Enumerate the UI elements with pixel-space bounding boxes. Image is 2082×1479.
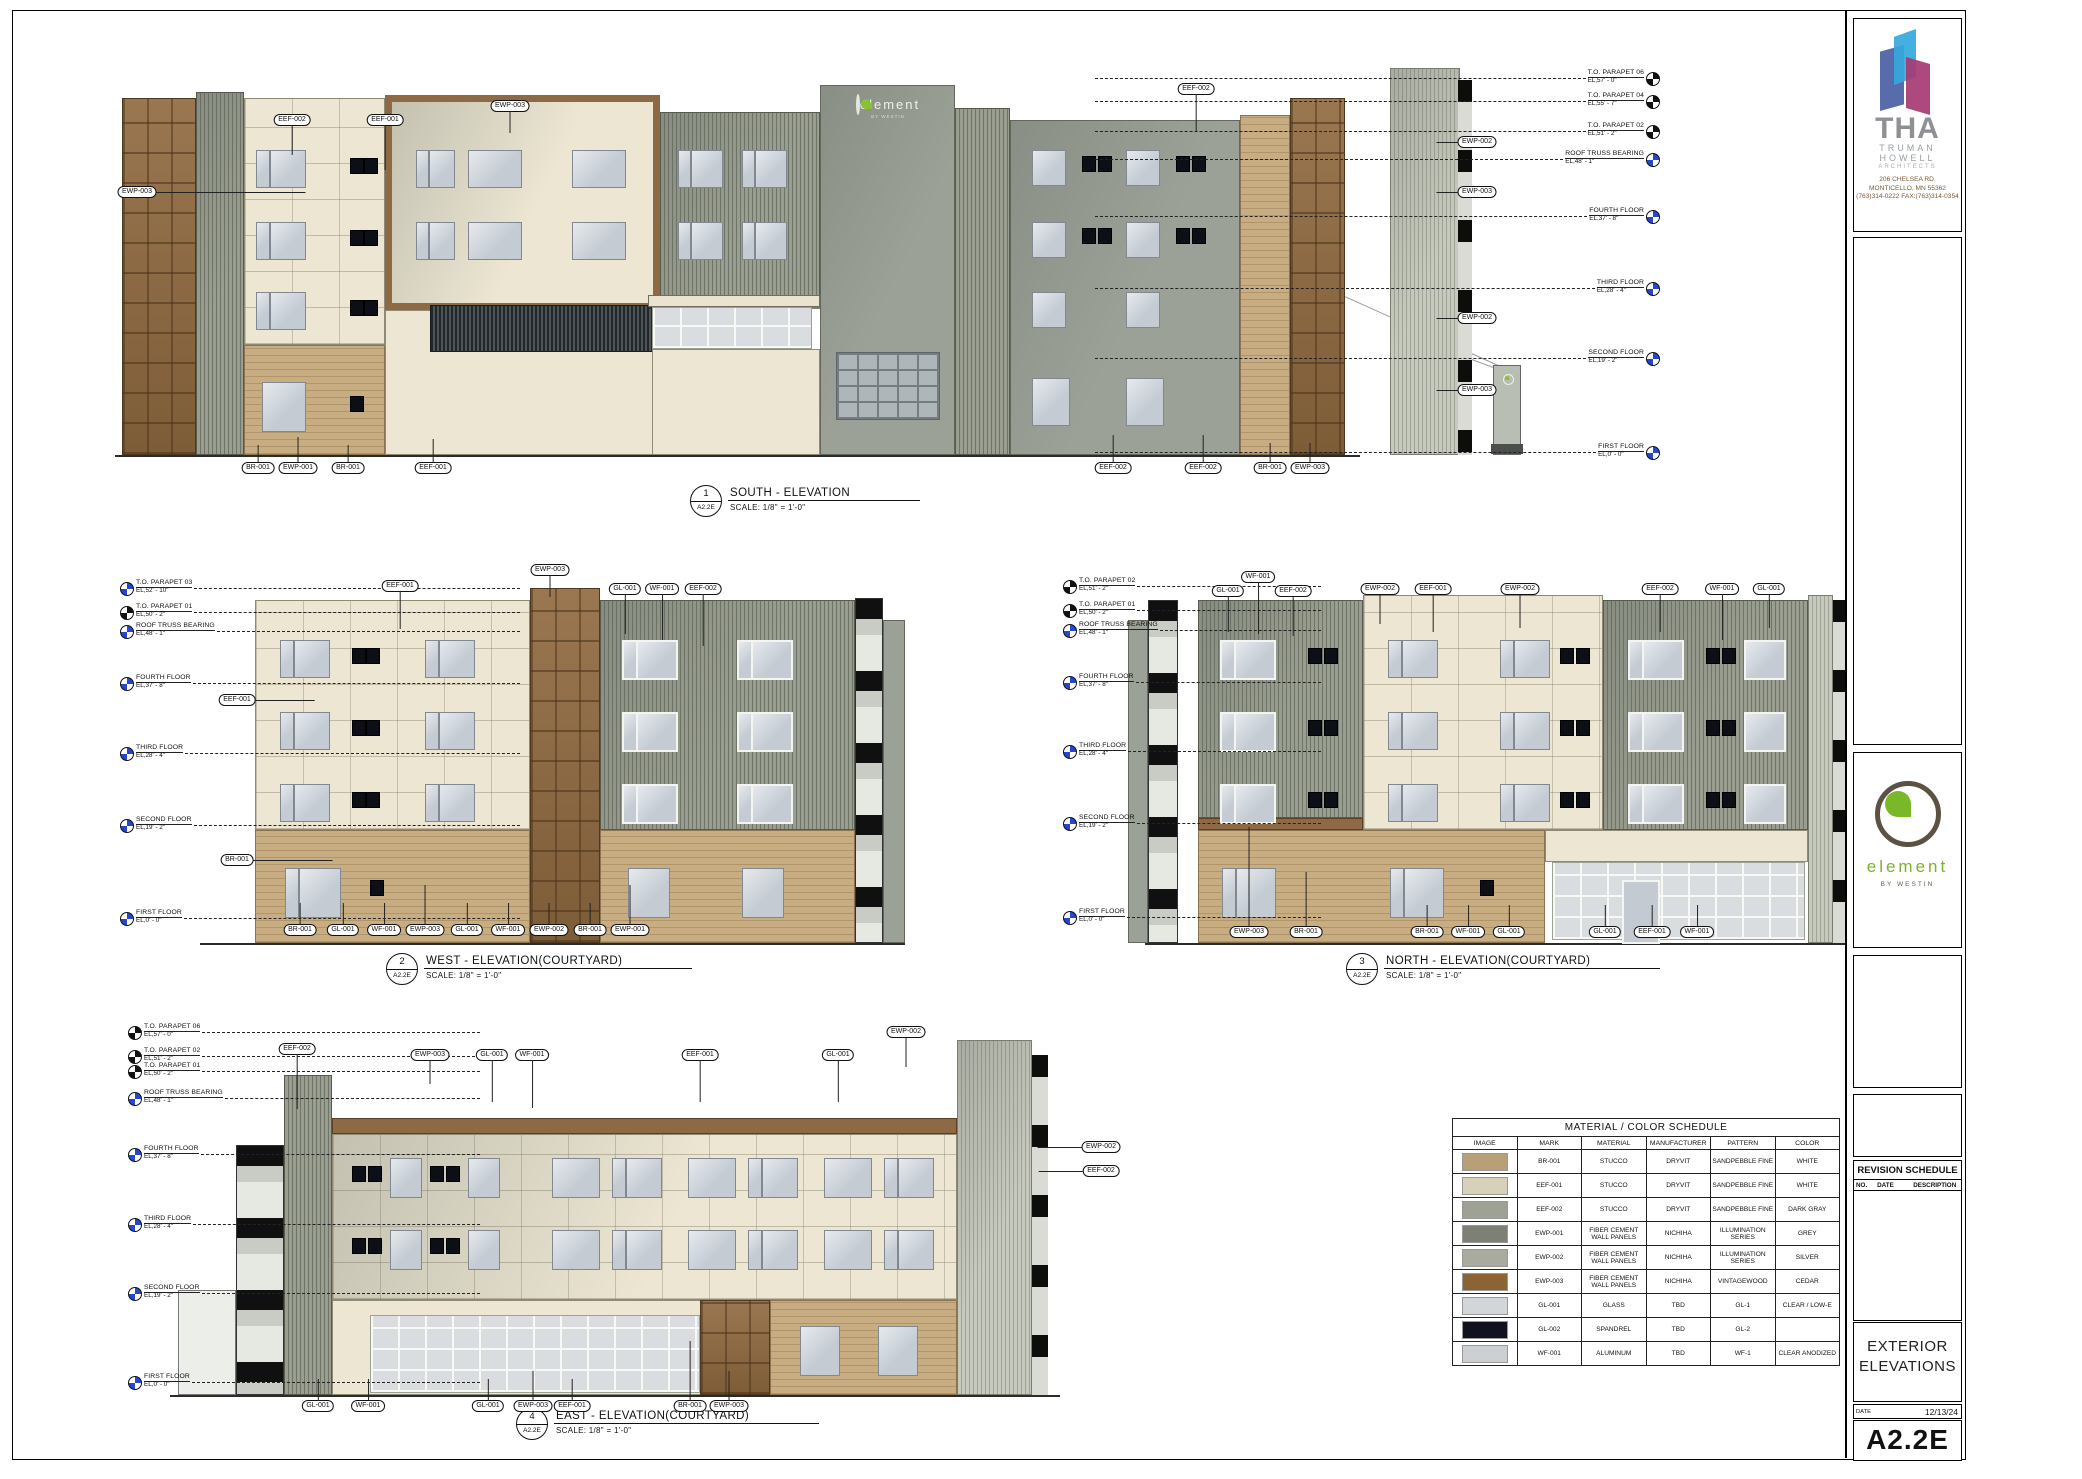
plg bbox=[1503, 374, 1514, 385]
window bbox=[884, 1158, 898, 1198]
lup bbox=[1249, 827, 1250, 927]
td: PATTERN bbox=[1711, 1137, 1776, 1150]
lup bbox=[572, 1379, 573, 1401]
material-tag-ewp-003: EWP-003 bbox=[1458, 384, 1497, 396]
material-tag-br-001: BR-001 bbox=[221, 854, 254, 866]
revision-title: REVISION SCHEDULE bbox=[1854, 1161, 1961, 1179]
span: WF-001 bbox=[520, 1051, 545, 1058]
level-text: FIRST FLOOREL,0' - 0" bbox=[134, 909, 184, 931]
span: WF-001 bbox=[1246, 573, 1271, 580]
lup bbox=[1310, 443, 1311, 463]
view-title: 1A2.2ESOUTH - ELEVATIONSCALE: 1/8" = 1'-… bbox=[690, 485, 920, 517]
tha-sub3: ARCHITECTS bbox=[1854, 163, 1961, 171]
view-number-bubble-icon: 3A2.2E bbox=[1346, 953, 1378, 985]
level-head-icon bbox=[1646, 153, 1660, 167]
window bbox=[878, 1326, 918, 1376]
spandrel-window bbox=[352, 720, 366, 736]
span: EWP-002 bbox=[1462, 314, 1492, 321]
span: BR-001 bbox=[578, 926, 602, 933]
td bbox=[1775, 1318, 1840, 1342]
window bbox=[468, 150, 522, 188]
spandrel-window bbox=[364, 300, 378, 316]
span: EEF-002 bbox=[1189, 464, 1217, 471]
level-marker: ROOF TRUSS BEARINGEL,48' - 1" bbox=[120, 622, 520, 644]
spandrel-window bbox=[1098, 228, 1112, 244]
td: GLASS bbox=[1582, 1294, 1647, 1318]
td bbox=[1453, 1198, 1518, 1222]
level-marker: FIRST FLOOREL,0' - 0" bbox=[1063, 908, 1321, 930]
level-head-icon bbox=[1063, 676, 1077, 690]
material-tag-gl-001: GL-001 bbox=[1493, 926, 1525, 938]
window bbox=[1642, 712, 1684, 752]
tha-sub: HOWELL bbox=[1854, 153, 1961, 163]
material-tag-ewp-001: EWP-001 bbox=[279, 462, 318, 474]
level-head-icon bbox=[1646, 282, 1660, 296]
span: GL-001 bbox=[306, 1402, 329, 1409]
spandrel-window bbox=[446, 1166, 460, 1182]
level-text: T.O. PARAPET 01EL,50' - 2" bbox=[142, 1062, 202, 1084]
span: EEF-001 bbox=[223, 696, 251, 703]
spandrel-window bbox=[1192, 228, 1206, 244]
lup bbox=[348, 445, 349, 463]
spandrel-window bbox=[430, 1166, 444, 1182]
span: EEF-002 bbox=[689, 585, 717, 592]
level-line bbox=[194, 825, 520, 826]
level-elevation: EL,28' - 4" bbox=[1079, 751, 1126, 758]
window bbox=[1126, 378, 1164, 426]
level-line bbox=[1095, 288, 1595, 289]
window bbox=[636, 784, 678, 824]
vtn: WEST - ELEVATION(COURTYARD) bbox=[424, 953, 692, 969]
td: ILLUMINATION SERIES bbox=[1711, 1246, 1776, 1270]
td: STUCCO bbox=[1582, 1150, 1647, 1174]
ldn bbox=[400, 591, 401, 629]
spandrel-window bbox=[352, 1238, 366, 1254]
level-line bbox=[202, 1293, 480, 1294]
material-tag-wf-001: WF-001 bbox=[367, 924, 401, 936]
level-marker: SECOND FLOOREL,19' - 2" bbox=[128, 1284, 480, 1306]
tbody: MATERIAL / COLOR SCHEDULE bbox=[1453, 1119, 1840, 1137]
ldn bbox=[297, 1054, 298, 1109]
level-text: ROOF TRUSS BEARINGEL,48' - 1" bbox=[1077, 621, 1160, 643]
ldn bbox=[532, 1060, 533, 1108]
facade-section bbox=[652, 349, 820, 455]
window bbox=[762, 1230, 798, 1270]
dt-l: DATE bbox=[1854, 1409, 1925, 1415]
view-title: 4A2.2EEAST - ELEVATION(COURTYARD)SCALE: … bbox=[516, 1408, 819, 1440]
facade-section bbox=[196, 92, 244, 455]
td bbox=[1453, 1294, 1518, 1318]
window bbox=[1514, 784, 1550, 822]
lup bbox=[258, 445, 259, 463]
material-tag-wf-001: WF-001 bbox=[351, 1400, 385, 1412]
span: EWP-003 bbox=[1462, 188, 1492, 195]
view-title: 2A2.2EWEST - ELEVATION(COURTYARD)SCALE: … bbox=[386, 953, 692, 985]
level-marker: T.O. PARAPET 04EL,55' - 7" bbox=[1095, 92, 1660, 114]
facade-section bbox=[122, 98, 196, 455]
window bbox=[1642, 640, 1684, 680]
level-elevation: EL,52' - 10" bbox=[136, 588, 192, 595]
material-swatch bbox=[1462, 1153, 1508, 1171]
span: EWP-002 bbox=[1462, 138, 1492, 145]
span: EWP-003 bbox=[415, 1051, 445, 1058]
td: STUCCO bbox=[1582, 1198, 1647, 1222]
material-tag-ewp-003: EWP-003 bbox=[491, 100, 530, 112]
window bbox=[416, 150, 429, 188]
facade-section bbox=[1148, 600, 1178, 943]
lup bbox=[1270, 443, 1271, 463]
level-text: T.O. PARAPET 06EL,57' - 0" bbox=[142, 1023, 202, 1045]
spandrel-window bbox=[1324, 720, 1338, 736]
schedule-row-ewp-003: EWP-003FIBER CEMENT WALL PANELSNICHIHAVI… bbox=[1453, 1270, 1840, 1294]
level-text: SECOND FLOOREL,19' - 2" bbox=[134, 816, 194, 838]
brand-subtitle: BY WESTIN bbox=[1854, 881, 1961, 888]
spandrel-window bbox=[1560, 648, 1574, 664]
span: BR-001 bbox=[1294, 928, 1318, 935]
level-head-icon bbox=[120, 582, 134, 596]
ldn bbox=[1228, 596, 1229, 632]
level-elevation: EL,51' - 2" bbox=[1079, 586, 1135, 593]
span: GL-001 bbox=[331, 926, 354, 933]
facade-section bbox=[652, 307, 812, 349]
level-elevation: EL,48' - 1" bbox=[1079, 630, 1158, 637]
window bbox=[688, 1158, 736, 1198]
material-tag-eef-002: EEF-002 bbox=[1642, 583, 1679, 595]
lup bbox=[1509, 905, 1510, 927]
level-line bbox=[225, 1098, 480, 1099]
brand-name: element bbox=[1854, 857, 1961, 877]
window bbox=[1744, 712, 1786, 752]
level-marker: ROOF TRUSS BEARINGEL,48' - 1" bbox=[1063, 621, 1321, 643]
level-marker: FOURTH FLOOREL,37' - 8" bbox=[1063, 673, 1321, 695]
llt bbox=[1437, 390, 1459, 391]
schedule-title: MATERIAL / COLOR SCHEDULE bbox=[1453, 1119, 1840, 1137]
spandrel-window bbox=[1308, 792, 1322, 808]
window bbox=[1402, 712, 1438, 750]
window bbox=[691, 150, 723, 188]
lup bbox=[1468, 905, 1469, 927]
span: EEF-001 bbox=[419, 464, 447, 471]
span: EEF-001 bbox=[558, 1402, 586, 1409]
vts: SCALE: 1/8" = 1'-0" bbox=[554, 1424, 819, 1435]
td bbox=[1453, 1246, 1518, 1270]
lup bbox=[1605, 905, 1606, 927]
span: EEF-001 bbox=[686, 1051, 714, 1058]
level-line bbox=[1095, 78, 1586, 79]
material-tag-br-001: BR-001 bbox=[1290, 926, 1323, 938]
level-elevation: EL,19' - 2" bbox=[1079, 823, 1135, 830]
window bbox=[755, 222, 787, 260]
window bbox=[1642, 784, 1684, 824]
spandrel-window bbox=[1576, 792, 1590, 808]
spandrel-window bbox=[430, 1238, 444, 1254]
span: WF-001 bbox=[1456, 928, 1481, 935]
spandrel-window bbox=[1706, 792, 1720, 808]
level-text: SECOND FLOOREL,19' - 2" bbox=[1077, 814, 1137, 836]
facade-section bbox=[530, 588, 600, 943]
ldn bbox=[1660, 594, 1661, 632]
element-sign: element BY WESTIN bbox=[828, 96, 948, 119]
lup bbox=[1306, 872, 1307, 927]
td: SANDPEBBLE FINE bbox=[1711, 1150, 1776, 1174]
spandrel-window bbox=[1576, 648, 1590, 664]
material-tag-ewp-002: EWP-002 bbox=[530, 924, 569, 936]
lup bbox=[690, 1341, 691, 1401]
material-tag-ewp-003: EWP-003 bbox=[1458, 186, 1497, 198]
window bbox=[1404, 868, 1444, 918]
facade-section bbox=[700, 1300, 770, 1395]
material-swatch bbox=[1462, 1297, 1508, 1315]
facade-section bbox=[385, 95, 660, 310]
material-tag-gl-001: GL-001 bbox=[1753, 583, 1785, 595]
facade-section bbox=[1545, 830, 1808, 862]
level-marker: T.O. PARAPET 02EL,51' - 2" bbox=[1095, 122, 1660, 144]
window bbox=[688, 1230, 736, 1270]
ldn bbox=[703, 594, 704, 646]
td: GREY bbox=[1775, 1222, 1840, 1246]
window bbox=[636, 712, 678, 752]
window bbox=[270, 150, 306, 188]
level-line bbox=[201, 1154, 480, 1155]
spandrel-window bbox=[364, 158, 378, 174]
material-tag-eef-002: EEF-002 bbox=[1275, 585, 1312, 597]
span: NORTH - ELEVATION(COURTYARD)SCALE: 1/8" … bbox=[1384, 953, 1660, 985]
level-marker: THIRD FLOOREL,28' - 4" bbox=[1095, 279, 1660, 301]
window bbox=[1032, 378, 1070, 426]
ldn bbox=[1722, 594, 1723, 640]
span: EWP-002 bbox=[1505, 585, 1535, 592]
ldn bbox=[430, 1060, 431, 1084]
material-tag-wf-001: WF-001 bbox=[491, 924, 525, 936]
b: 3 bbox=[1347, 954, 1377, 970]
material-tag-br-001: BR-001 bbox=[1254, 462, 1287, 474]
td: ALUMINUM bbox=[1582, 1342, 1647, 1366]
material-tag-eef-001: EEF-001 bbox=[415, 462, 452, 474]
lup bbox=[1697, 905, 1698, 927]
material-tag-gl-001: GL-001 bbox=[609, 583, 641, 595]
window bbox=[416, 222, 429, 260]
level-text: T.O. PARAPET 02EL,51' - 2" bbox=[1077, 577, 1137, 599]
span: EEF-002 bbox=[1099, 464, 1127, 471]
facade-section bbox=[1032, 1055, 1048, 1395]
span: WF-001 bbox=[496, 926, 521, 933]
drawing-sheet: element BY WESTIN bbox=[0, 0, 2082, 1479]
span: BR-001 bbox=[225, 856, 249, 863]
level-line bbox=[1137, 823, 1321, 824]
lrt bbox=[254, 700, 314, 701]
level-marker: ROOF TRUSS BEARINGEL,48' - 1" bbox=[1095, 150, 1660, 172]
level-elevation: EL,0' - 0" bbox=[1598, 452, 1644, 459]
spandrel-window bbox=[368, 1238, 382, 1254]
schedule-row-eef-001: EEF-001STUCCODRYVITSANDPEBBLE FINEWHITE bbox=[1453, 1174, 1840, 1198]
schedule-row-eef-002: EEF-002STUCCODRYVITSANDPEBBLE FINEDARK G… bbox=[1453, 1198, 1840, 1222]
level-elevation: EL,48' - 1" bbox=[1565, 159, 1644, 166]
i bbox=[861, 99, 871, 109]
level-elevation: EL,19' - 2" bbox=[144, 1293, 200, 1300]
level-text: FOURTH FLOOREL,37' - 8" bbox=[1587, 207, 1646, 229]
material-tag-eef-001: EEF-001 bbox=[554, 1400, 591, 1412]
schedule-row-wf-001: WF-001ALUMINUMTBDWF-1CLEAR ANODIZED bbox=[1453, 1342, 1840, 1366]
level-head-icon bbox=[1063, 817, 1077, 831]
lup bbox=[1113, 435, 1114, 463]
rev-h: NO. DATE DESCRIPTION bbox=[1854, 1179, 1961, 1191]
firm-address: 206 CHELSEA RD. bbox=[1854, 176, 1961, 185]
spandrel-window bbox=[446, 1238, 460, 1254]
spandrel-window bbox=[370, 880, 384, 896]
window bbox=[552, 1158, 600, 1198]
level-elevation: EL,28' - 4" bbox=[1597, 288, 1644, 295]
td: SPANDREL bbox=[1582, 1318, 1647, 1342]
window bbox=[1032, 222, 1066, 258]
span: GL-001 bbox=[1593, 928, 1616, 935]
level-head-icon bbox=[128, 1376, 142, 1390]
td: NICHIHA bbox=[1646, 1270, 1711, 1294]
span: EAST - ELEVATION(COURTYARD)SCALE: 1/8" =… bbox=[554, 1408, 819, 1440]
material-tag-br-001: BR-001 bbox=[242, 462, 275, 474]
window bbox=[898, 1230, 934, 1270]
facade-section bbox=[1128, 620, 1148, 943]
element-logo-icon bbox=[856, 94, 860, 115]
span: GL-001 bbox=[826, 1051, 849, 1058]
level-line bbox=[217, 631, 520, 632]
td: IMAGE bbox=[1453, 1137, 1518, 1150]
material-tag-ewp-002: EWP-002 bbox=[1458, 136, 1497, 148]
sheet-title-box: EXTERIOR ELEVATIONS bbox=[1853, 1322, 1962, 1402]
td: EEF-001 bbox=[1517, 1174, 1582, 1198]
lup bbox=[729, 1371, 730, 1401]
level-marker: T.O. PARAPET 06EL,57' - 0" bbox=[128, 1023, 480, 1045]
window bbox=[626, 1158, 662, 1198]
span: EWP-003 bbox=[495, 102, 525, 109]
span: EWP-002 bbox=[891, 1028, 921, 1035]
span: EEF-002 bbox=[1646, 585, 1674, 592]
window bbox=[1514, 712, 1550, 750]
td: MATERIAL bbox=[1582, 1137, 1647, 1150]
level-line bbox=[1136, 682, 1321, 683]
level-head-icon bbox=[1063, 604, 1077, 618]
window bbox=[270, 292, 306, 330]
span: WF-001 bbox=[1710, 585, 1735, 592]
td: SANDPEBBLE FINE bbox=[1711, 1198, 1776, 1222]
spandrel-window bbox=[1308, 720, 1322, 736]
td bbox=[1453, 1270, 1518, 1294]
span: EEF-001 bbox=[371, 116, 399, 123]
facade-section bbox=[1493, 365, 1521, 455]
level-text: ROOF TRUSS BEARINGEL,48' - 1" bbox=[142, 1089, 225, 1111]
material-tag-wf-001: WF-001 bbox=[1241, 571, 1275, 583]
lup bbox=[1652, 905, 1653, 927]
material-tag-eef-001: EEF-001 bbox=[1634, 926, 1671, 938]
window bbox=[256, 150, 270, 188]
material-tag-eef-002: EEF-002 bbox=[1083, 1165, 1120, 1177]
level-head-icon bbox=[120, 625, 134, 639]
material-tag-ewp-003: EWP-003 bbox=[411, 1049, 450, 1061]
ground-line bbox=[200, 943, 905, 945]
level-line bbox=[1095, 358, 1586, 359]
level-text: ROOF TRUSS BEARINGEL,48' - 1" bbox=[134, 622, 217, 644]
material-tag-gl-001: GL-001 bbox=[302, 1400, 334, 1412]
ldn bbox=[1520, 594, 1521, 628]
level-head-icon bbox=[128, 1026, 142, 1040]
level-elevation: EL,48' - 1" bbox=[136, 631, 215, 638]
window bbox=[636, 640, 678, 680]
level-elevation: EL,48' - 1" bbox=[144, 1098, 223, 1105]
level-line bbox=[1095, 101, 1586, 102]
td bbox=[1453, 1318, 1518, 1342]
level-text: SECOND FLOOREL,19' - 2" bbox=[142, 1284, 202, 1306]
level-head-icon bbox=[120, 747, 134, 761]
level-elevation: EL,37' - 8" bbox=[1589, 216, 1644, 223]
facade-section bbox=[855, 598, 883, 943]
span: BR-001 bbox=[678, 1402, 702, 1409]
span: BR-001 bbox=[336, 464, 360, 471]
td: GL-002 bbox=[1517, 1318, 1582, 1342]
level-line bbox=[184, 918, 520, 919]
view-number-bubble-icon: 4A2.2E bbox=[516, 1408, 548, 1440]
span: EEF-002 bbox=[1279, 587, 1307, 594]
material-tag-eef-002: EEF-002 bbox=[274, 114, 311, 126]
span: WF-001 bbox=[356, 1402, 381, 1409]
material-tag-br-001: BR-001 bbox=[674, 1400, 707, 1412]
window bbox=[1390, 868, 1404, 918]
schedule-row-br-001: BR-001STUCCODRYVITSANDPEBBLE FINEWHITE bbox=[1453, 1150, 1840, 1174]
h: IMAGEMARKMATERIALMANUFACTURERPATTERNCOLO… bbox=[1453, 1137, 1840, 1150]
td: EWP-001 bbox=[1517, 1222, 1582, 1246]
window bbox=[1500, 712, 1514, 750]
bw: BY WESTIN bbox=[828, 114, 948, 119]
level-head-icon bbox=[128, 1287, 142, 1301]
spandrel-window bbox=[350, 230, 364, 246]
level-line bbox=[1127, 917, 1321, 918]
spandrel-window bbox=[1176, 228, 1190, 244]
level-text: SECOND FLOOREL,19' - 2" bbox=[1586, 349, 1646, 371]
material-tag-br-001: BR-001 bbox=[284, 924, 317, 936]
ldn bbox=[838, 1060, 839, 1102]
level-elevation: EL,37' - 8" bbox=[136, 683, 191, 690]
lup bbox=[1427, 905, 1428, 927]
b: 1 bbox=[691, 486, 721, 502]
span: BR-001 bbox=[246, 464, 270, 471]
td: TBD bbox=[1646, 1294, 1711, 1318]
material-tag-br-001: BR-001 bbox=[1411, 926, 1444, 938]
window bbox=[678, 150, 691, 188]
schedule-row-ewp-002: EWP-002FIBER CEMENT WALL PANELSNICHIHAIL… bbox=[1453, 1246, 1840, 1270]
material-tag-ewp-003: EWP-003 bbox=[710, 1400, 749, 1412]
ldn bbox=[1258, 582, 1259, 634]
level-elevation: EL,28' - 4" bbox=[136, 753, 183, 760]
llt bbox=[1437, 192, 1459, 193]
level-text: T.O. PARAPET 02EL,51' - 2" bbox=[1586, 122, 1646, 144]
level-marker: SECOND FLOOREL,19' - 2" bbox=[1095, 349, 1660, 371]
window bbox=[800, 1326, 840, 1376]
material-tag-ewp-003: EWP-003 bbox=[118, 186, 157, 198]
material-swatch bbox=[1462, 1273, 1508, 1291]
lup bbox=[590, 903, 591, 925]
level-line bbox=[192, 1382, 480, 1383]
window bbox=[1402, 640, 1438, 678]
ldn bbox=[1196, 94, 1197, 132]
td bbox=[1453, 1150, 1518, 1174]
facade-section bbox=[836, 352, 940, 420]
td: COLOR bbox=[1775, 1137, 1840, 1150]
level-elevation: EL,0' - 0" bbox=[144, 1382, 190, 1389]
facade-section bbox=[236, 1145, 284, 1395]
lup bbox=[318, 1379, 319, 1401]
span: EWP-003 bbox=[535, 566, 565, 573]
td: DRYVIT bbox=[1646, 1150, 1711, 1174]
level-head-icon bbox=[1646, 446, 1660, 460]
span: EEF-001 bbox=[386, 582, 414, 589]
